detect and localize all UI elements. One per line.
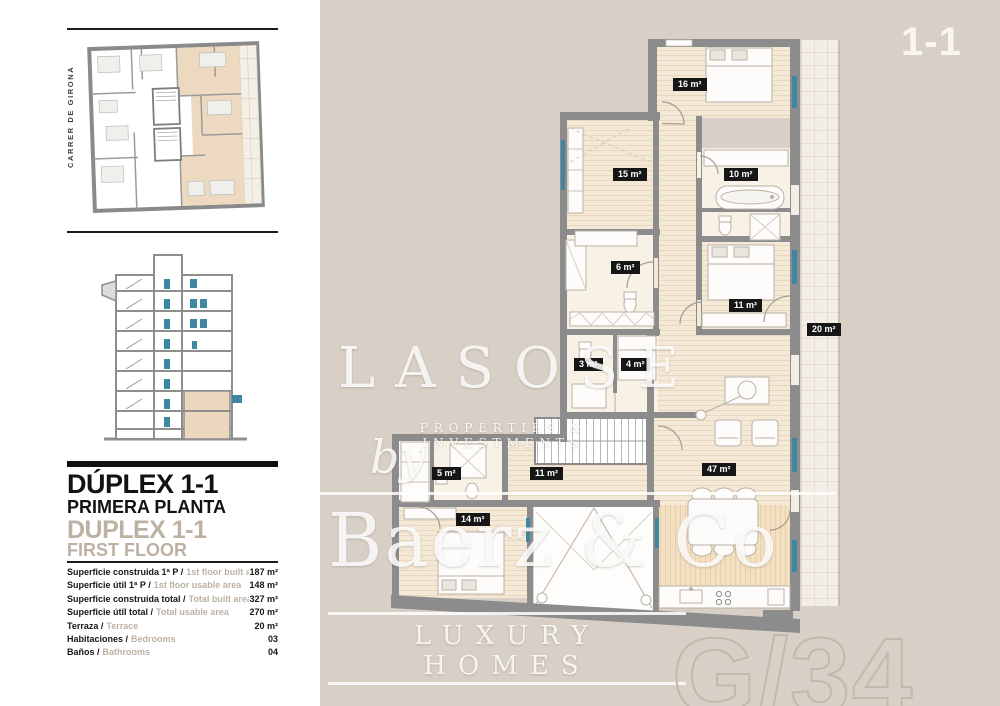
watermark-agency-tagline: LUXURY HOMES xyxy=(328,621,686,681)
divider-top xyxy=(67,28,278,30)
divider-specs xyxy=(67,561,278,563)
spec-label-es: Superficie útil 1ª P / xyxy=(67,580,151,590)
spec-value: 03 xyxy=(268,634,278,644)
building-section xyxy=(92,243,257,455)
spec-label-en: Terrace xyxy=(106,621,138,631)
street-label: CARRER DE GIRONA xyxy=(66,48,75,168)
spec-row: Terraza /Terrace20 m² xyxy=(67,621,278,634)
room-label-11a: 11 m² xyxy=(729,299,762,312)
room-label-15: 15 m² xyxy=(613,168,647,181)
spec-label-en: Bathrooms xyxy=(103,647,151,657)
spec-label-en: Total built area xyxy=(189,594,250,604)
unit-number: 1-1 xyxy=(901,20,962,65)
spec-label-es: Superficie construida total / xyxy=(67,594,186,604)
watermark-divider-mid xyxy=(328,612,686,615)
room-label-6: 6 m² xyxy=(611,261,640,274)
watermark-brand: LASOSE xyxy=(338,336,668,401)
spec-row: Habitaciones /Bedrooms03 xyxy=(67,634,278,647)
room-label-10: 10 m² xyxy=(724,168,758,181)
page-reference: G/34 xyxy=(672,622,914,706)
room-label-terrace: 20 m² xyxy=(807,323,841,336)
room-label-11b: 11 m² xyxy=(530,467,563,480)
spec-value: 327 m² xyxy=(249,594,278,604)
subtitle-spanish: PRIMERA PLANTA xyxy=(67,497,226,518)
spec-label-en: Total usable area xyxy=(156,607,229,617)
spec-row: Superficie construida total /Total built… xyxy=(67,594,278,607)
plan-canvas: 16 m² 15 m² 10 m² 6 m² 11 m² 3 m² 4 m² 1… xyxy=(320,0,1000,706)
watermark-divider-top xyxy=(320,492,836,495)
room-label-47: 47 m² xyxy=(702,463,736,476)
spec-value: 187 m² xyxy=(249,567,278,577)
spec-value: 270 m² xyxy=(249,607,278,617)
subtitle-english: FIRST FLOOR xyxy=(67,540,187,561)
spec-row: Superficie útil 1ª P /1st floor usable a… xyxy=(67,580,278,593)
spec-value: 20 m² xyxy=(254,621,278,631)
title-spanish: DÚPLEX 1-1 xyxy=(67,469,218,500)
spec-row: Superficie construida 1ª P /1st floor bu… xyxy=(67,567,278,580)
spec-label-en: 1st floor built area xyxy=(186,567,249,577)
spec-label-es: Baños / xyxy=(67,647,100,657)
watermark-divider-bottom xyxy=(328,682,686,685)
spec-row: Baños /Bathrooms04 xyxy=(67,647,278,660)
spec-label-es: Superficie construida 1ª P / xyxy=(67,567,183,577)
spec-value: 148 m² xyxy=(249,580,278,590)
room-label-5: 5 m² xyxy=(432,467,461,480)
brochure-page: CARRER DE GIRONA xyxy=(0,0,1000,706)
divider-middle xyxy=(67,231,278,233)
spec-value: 04 xyxy=(268,647,278,657)
spec-label-en: Bedrooms xyxy=(131,634,176,644)
room-label-16: 16 m² xyxy=(673,78,707,91)
spec-label-es: Habitaciones / xyxy=(67,634,128,644)
sidebar: CARRER DE GIRONA xyxy=(0,0,320,706)
spec-label-es: Terraza / xyxy=(67,621,103,631)
spec-label-es: Superficie útil total / xyxy=(67,607,153,617)
spec-label-en: 1st floor usable area xyxy=(154,580,242,590)
spec-row: Superficie útil total /Total usable area… xyxy=(67,607,278,620)
title-bar xyxy=(67,461,278,467)
watermark-by: by xyxy=(370,430,425,484)
watermark-agency: Baerz & Co xyxy=(328,498,1000,584)
spec-table: Superficie construida 1ª P /1st floor bu… xyxy=(67,567,278,661)
key-site-plan xyxy=(82,36,274,218)
